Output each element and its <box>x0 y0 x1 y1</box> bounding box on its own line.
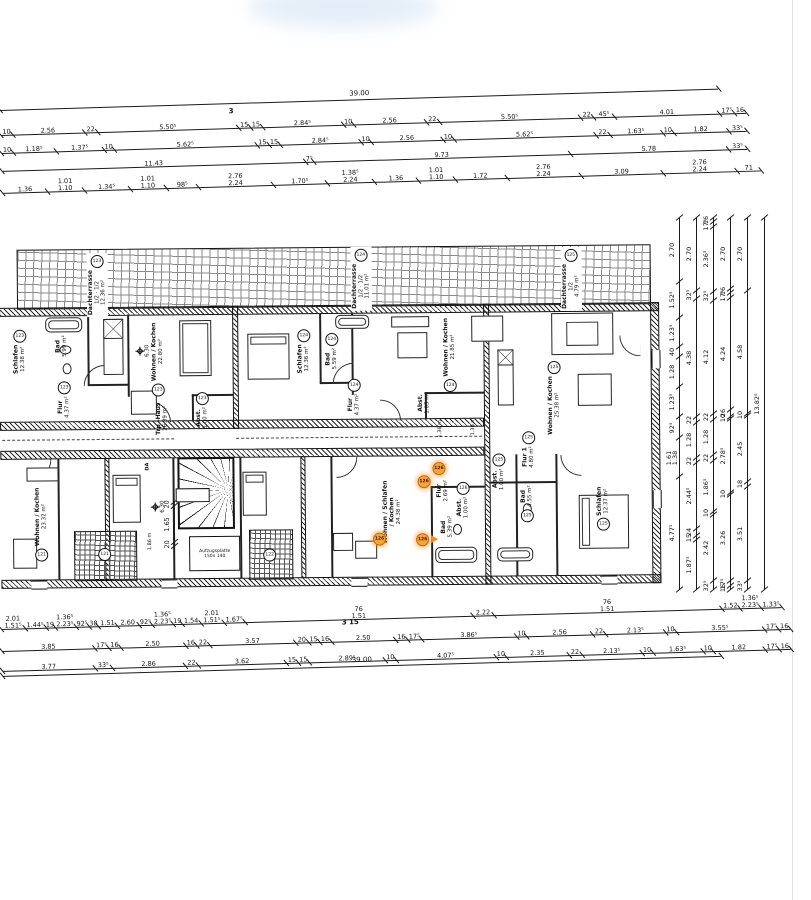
partition <box>425 392 485 394</box>
dim-value: 15 <box>257 139 269 146</box>
toilet-icon <box>453 524 462 535</box>
terrace-label-123: 123 Dachterrasse1/2 · 1/212.36 m² <box>87 253 108 317</box>
dim-value: 3.85 <box>2 642 94 651</box>
dim-value: 5.78 <box>570 143 728 154</box>
dim-value: 1.51 <box>98 619 117 626</box>
highlight-unit-badge: 126 <box>373 533 386 546</box>
dim-value: 4.77⁵ <box>664 477 679 590</box>
room-label-flur-123: 123 Flur4.37 m² <box>58 381 71 418</box>
dining-table-icon <box>578 374 612 406</box>
unit-badge: 123 <box>196 392 209 405</box>
dim-value: 10 <box>103 143 114 150</box>
dim-value: 5.62⁵ <box>453 129 596 140</box>
dim-value: 45⁵ <box>593 110 614 117</box>
dim-value: 98⁵ <box>166 181 198 188</box>
dim-value: 1.36⁵ 2.23⁵ <box>739 595 760 609</box>
unit-badge: 125 <box>521 509 534 522</box>
staircase <box>177 457 235 529</box>
dim-value: 16 <box>109 641 121 648</box>
dim-value: 38 <box>89 620 99 627</box>
overall-dimension-value: 39.00 <box>352 656 372 665</box>
armchair-icon <box>333 533 353 551</box>
dim-value: 4.58 <box>732 291 747 414</box>
dim-value: 1.28 <box>681 423 696 457</box>
v-dimension-chain-2: 2.7032⁵4.38221.28222.44⁵24151.87⁵ <box>681 218 697 590</box>
floorplan-scan-page: 39.00 3 102.56225.50⁵15152.84⁵102.56225.… <box>0 0 811 900</box>
v-dimension-chain-5: 2.704.58102.45183.5133⁵ <box>732 218 748 590</box>
dim-value: 1.67⁵ <box>223 616 245 623</box>
unit-badge: 121 <box>35 548 48 561</box>
dim-value: 10 <box>360 135 371 142</box>
unit-badge: 123 <box>152 383 165 396</box>
v-dimension-chain-3: 1617⁵2.36⁵32⁵4.12221.28221.86⁵102.4232⁵ <box>698 218 714 590</box>
bathtub-icon <box>497 547 533 561</box>
overall-dimension-value: 39.00 <box>349 89 369 98</box>
dim-value: 11.43 <box>2 155 305 170</box>
dim-value: 19 <box>46 621 55 628</box>
sofa-icon <box>391 316 429 327</box>
dim-value: 16 <box>734 106 746 113</box>
dim-value: 10 <box>443 133 454 140</box>
unit-badge: 125 <box>564 249 577 262</box>
unit-badge: 123 <box>13 330 26 343</box>
bed-icon <box>113 475 141 523</box>
apartment-separation-wall-4 <box>300 456 306 578</box>
dim-value: 1.72 <box>454 171 506 179</box>
room-label-flur1-125: 125 Flur 14.80 m² <box>522 431 535 468</box>
dim-value: 19 <box>173 617 182 624</box>
partition <box>192 394 194 421</box>
bathtub-icon <box>435 547 477 563</box>
mini-dim: 1.36 m <box>470 418 476 436</box>
dim-value: 1.01 1.10 <box>418 167 455 181</box>
dim-value: 3.55⁵ <box>676 623 765 632</box>
dim-value: 1.33⁵ <box>761 601 782 608</box>
dim-value: 3.09 <box>581 167 663 176</box>
window <box>31 580 47 589</box>
highlight-arrow-icon <box>431 535 438 543</box>
dim-value: 2.56 <box>371 133 443 142</box>
dim-value: 2.84⁵ <box>262 118 343 127</box>
unit-badge: 124 <box>444 379 457 392</box>
unit-badge: 124 <box>297 329 310 342</box>
room-label-wohnen-123: Wohnen / Kochen22.80 m² 123 <box>151 322 165 396</box>
dim-value: 3.86⁵ <box>421 630 516 639</box>
unit-badge: 123 <box>90 255 103 268</box>
highlight-unit-badge: 126 <box>416 533 429 546</box>
unit-badge: 125 <box>522 431 535 444</box>
room-label-bad-123: Bad5.99 m² <box>55 335 68 357</box>
dim-value: 1.23⁵ <box>664 318 679 347</box>
door-arc <box>380 399 401 420</box>
sofa-set-icon <box>551 313 613 356</box>
paper-edge-line <box>792 0 793 900</box>
axis-mark: 3 15 <box>342 618 359 626</box>
unit-badge: 126 <box>457 482 470 495</box>
dim-value: 10 <box>343 118 354 125</box>
dim-value: 1.44⁵ <box>24 621 45 628</box>
dim-value: 4.12 <box>698 301 713 414</box>
room-label-wohnen-124: Wohnen / Kochen21.85 m² 124 <box>443 318 457 392</box>
room-label-schlafen-124: 124 Schlafen12.36 m² <box>297 329 310 373</box>
room-label-wohnen-125: 125 Wohnen / Kochen25.38 m² <box>548 361 562 435</box>
dim-value: 4.01 <box>614 107 719 117</box>
partition <box>431 486 433 577</box>
dim-value: 22 <box>596 128 609 135</box>
v-dimension-chain-1: 2.701.52⁵1.23⁵401.281.23⁵92⁵1.61 1.384.7… <box>664 218 680 590</box>
dining-table-icon <box>471 315 503 341</box>
level-mark: 6.30 <box>151 502 160 511</box>
dim-value: 2.76 2.24 <box>662 158 737 173</box>
dim-value: 2.70 <box>715 218 730 289</box>
dim-value: 1.01 1.10 <box>47 178 84 192</box>
level-mark: 6.30 <box>135 347 144 356</box>
dim-value: 1.86⁵ <box>698 461 713 512</box>
dim-value: 3.26 <box>715 495 730 581</box>
dim-value: 10 <box>516 630 526 637</box>
dim-value: 2.56 <box>12 126 84 135</box>
dim-value: 16 <box>319 635 331 642</box>
dim-value: 2.44⁵ <box>681 463 696 529</box>
elevator-plate: Aufzugsplatte 150x 140 <box>189 536 240 571</box>
room-label-flur-124: 124 Flur4.37 m² <box>348 379 361 416</box>
dim-value: 16 <box>778 622 790 629</box>
dim-value: 5.50⁵ <box>439 111 580 122</box>
window <box>651 350 660 368</box>
unit-badge: 123 <box>58 381 71 394</box>
outer-wall-right <box>650 302 661 583</box>
dim-value: 92⁵ <box>664 417 679 439</box>
room-label-studio-126: Wohnen / Schlafen / Kochen24.38 m² <box>383 480 403 543</box>
dim-value: 2.42 <box>698 515 713 581</box>
window <box>161 579 177 588</box>
dim-value: 2.84⁵ <box>280 136 361 145</box>
bathtub-icon <box>45 317 82 332</box>
partition <box>319 313 321 383</box>
room-label-schlafen-125: Schlafen12.37 m² 125 <box>597 487 610 531</box>
dim-value: 2.36⁵ <box>698 227 713 292</box>
partition <box>330 456 333 578</box>
sofa-icon <box>179 320 211 376</box>
table-icon <box>397 332 427 358</box>
dim-value: 20 <box>159 542 174 546</box>
scan-smudge <box>248 0 438 28</box>
unit-badge: 125 <box>492 453 505 466</box>
apartment-separation-wall-1 <box>232 306 239 429</box>
kitchen-sink-icon <box>497 349 513 365</box>
door-arc <box>560 455 581 476</box>
unit-badge: 121 <box>98 548 111 561</box>
dim-value: 2.70 <box>681 218 696 291</box>
top-dimension-block: 39.00 3 102.56225.50⁵15152.84⁵102.56225.… <box>0 69 763 200</box>
dim-value: 1.63⁵ <box>609 127 663 135</box>
dim-value: 92⁵ <box>75 620 89 627</box>
door-arc <box>619 335 640 356</box>
door-arc <box>336 457 357 478</box>
floor-plan: Aufzugsplatte 150x 140 121 122 <box>0 240 663 592</box>
unit-badge: 124 <box>348 379 361 392</box>
dim-value: 10 <box>2 146 13 153</box>
dim-value: 71 <box>737 164 761 171</box>
dim-value: 1.01 1.10 <box>129 175 166 189</box>
bed-icon <box>247 333 289 379</box>
dim-value: 1.87⁵ <box>681 540 696 590</box>
window <box>601 576 617 585</box>
dim-value: 2.56 <box>526 628 592 636</box>
dim-value: 1.70⁵ <box>273 177 327 185</box>
room-label-abst-125: 125 Abst.1.00 m² <box>492 453 505 490</box>
dim-value: 17⁵ <box>94 641 108 648</box>
dim-value: 22 <box>580 111 593 118</box>
kitchen-sink-icon <box>103 319 123 339</box>
dim-value: 2.78⁵ <box>715 419 730 492</box>
dim-value: 10 <box>662 127 673 134</box>
dim-value: 76 1.51 <box>493 596 721 615</box>
dim-value: 16 <box>396 633 408 640</box>
dim-value: 2.22 <box>473 609 494 616</box>
dim-value: 32⁵ <box>698 292 713 301</box>
dim-value: 17⁵ <box>764 623 778 630</box>
room-label-bad-125: Bad4.55 m² 125 <box>521 485 534 522</box>
dim-value: 1.52⁵ <box>664 282 679 318</box>
dim-value: 1.37⁵ <box>56 143 104 151</box>
v-dimension-chain-4: 2.701617⁵4.2426102.78⁵103.2617⁵16 <box>715 218 731 590</box>
dim-value: 20 <box>296 636 308 643</box>
dim-value: 22 <box>84 126 97 133</box>
dim-value: 92⁵ <box>138 618 152 625</box>
highlight-unit-badge: 126 <box>432 462 445 475</box>
dim-value: 1.18⁵ <box>12 145 56 153</box>
dim-value: 9.73 <box>313 148 569 162</box>
dim-value: 33⁵ <box>728 142 747 149</box>
dim-value: 1.36 <box>374 174 418 182</box>
bathtub-icon <box>335 315 369 329</box>
unit-badge: 124 <box>354 249 367 262</box>
da-label: DA <box>144 463 150 471</box>
partition <box>555 454 558 576</box>
dim-value: 1.52 <box>721 602 740 609</box>
wall-lower-band-top <box>0 447 484 460</box>
terrace-label-125: 125 Dachterrasse1/24.79 m² <box>561 247 582 311</box>
dim-value: 5.62⁵ <box>114 139 257 150</box>
dim-value: 1.36⁵ 2.23⁵ <box>54 614 75 628</box>
dim-value: 1.34⁵ <box>83 183 129 191</box>
room-label-bad-126: Bad5.39 m² <box>441 516 454 538</box>
dim-value: 1.36⁵ 2.23⁵ <box>152 611 173 625</box>
dim-value: 1.28 <box>698 420 713 455</box>
dim-value: 1.38⁵ 2.24 <box>327 169 374 183</box>
dim-value: 2.01 1.51⁵ <box>200 610 223 624</box>
dim-value: 17⁵ <box>719 107 734 114</box>
dim-value: 22 <box>426 115 439 122</box>
dim-value: 3.57 <box>209 636 296 645</box>
unit-badge: 125 <box>597 518 610 531</box>
dim-value: 16 <box>779 642 791 649</box>
dim-value: 2.50 <box>331 633 396 641</box>
dim-value: 7⁵ <box>305 155 314 162</box>
window <box>653 490 662 508</box>
highlight-unit-badge: 126 <box>418 475 431 488</box>
wall-upper-band-bottom <box>0 418 484 431</box>
sofa-icon <box>26 467 58 481</box>
dim-value: 2.45 <box>732 416 747 482</box>
room-label-wohnen-121: Wohnen / Kochen23.32 m² 121 <box>35 487 49 561</box>
dim-value: 4.24 <box>715 298 730 410</box>
dim-value: 2.60 <box>117 619 139 626</box>
window <box>351 578 367 587</box>
dim-value: 16 <box>185 639 197 646</box>
dim-value: 2.13⁵ <box>605 626 665 634</box>
axis-mark: 3 <box>229 107 234 115</box>
stairhouse-label: Trp.-Haus26.39 m² <box>156 402 169 434</box>
room-label-abst-126: 126 Abst.1.00 m² <box>457 482 470 519</box>
dim-value: 1.36 <box>3 185 47 193</box>
terrace-label-124: 124 Dachterrasse1/2 · 1/211.01 m² <box>351 247 372 311</box>
room-label-abst-123: 123 Abst.1.00 m² <box>196 392 209 429</box>
elevator-size: 150x 140 <box>204 553 225 558</box>
dim-value: 2.76 2.24 <box>198 172 273 187</box>
roof-edge-dashed <box>236 436 482 439</box>
dim-value: 10 <box>665 626 675 633</box>
dim-value: 22 <box>196 639 209 646</box>
dim-value: 1.28 <box>664 357 679 387</box>
v-dimension-chain-total: 13.82⁵ <box>749 218 765 590</box>
dim-value: 33⁵ <box>728 124 746 131</box>
roof-edge-dashed <box>2 438 174 441</box>
dim-value: 1.23⁵ <box>664 387 679 416</box>
unit-badge: 125 <box>548 361 561 374</box>
room-label-schlafen-123: 123 Schlafen12.38 m² <box>13 330 26 374</box>
dim-value: 40 <box>664 347 679 357</box>
dim-value: 17⁵ <box>765 643 780 650</box>
dim-value: 2.50 <box>120 639 185 647</box>
level-value: 6.30 <box>160 500 166 512</box>
dim-value: 1.82 <box>673 125 728 133</box>
mini-dim: 1.36 m <box>437 420 443 438</box>
dim-value: 3.51 <box>732 487 747 581</box>
dim-value: 1.54 <box>182 617 201 624</box>
dim-value: 4.38 <box>681 299 696 417</box>
dim-value: 32⁵ <box>681 291 696 300</box>
stair-landing <box>176 488 210 502</box>
mini-dim: 1.86 m <box>147 533 153 551</box>
right-dimension-block: 2.701.52⁵1.23⁵401.281.23⁵92⁵1.61 1.384.7… <box>662 218 764 592</box>
bed-icon <box>242 472 266 516</box>
roof-terrace-hatch <box>17 244 651 310</box>
room-label-flur-126: Flur2.69 m² <box>437 480 450 502</box>
dim-value: 15 <box>268 138 280 145</box>
dim-value: 5.50⁵ <box>97 121 238 132</box>
apartment-separation-wall-2 <box>483 304 491 585</box>
toilet-icon <box>63 363 72 374</box>
bottom-dimension-block: 2.01 1.51⁵1.44⁵191.36⁵ 2.23⁵92⁵381.512.6… <box>0 582 793 682</box>
dim-value: 2.01 1.51⁵ <box>1 615 24 629</box>
unit-badge: 124 <box>325 333 338 346</box>
dim-value: 2.56 <box>353 116 425 125</box>
dim-value: 17⁵ <box>407 633 421 640</box>
dim-value: 2.76 2.24 <box>506 163 581 178</box>
room-label-abst-124: Abst.1.03 m² <box>418 392 431 414</box>
dim-value: 15 <box>308 636 319 643</box>
dim-value: 2.70 <box>664 218 679 282</box>
dim-value: 22 <box>593 628 606 635</box>
dim-value: 15 <box>250 121 262 128</box>
unit-badge: 122 <box>263 548 276 561</box>
room-label-bad-124: 124 Bad5.59 m² <box>325 333 338 370</box>
dim-value: 10 <box>1 128 12 135</box>
dim-value: 15 <box>238 121 250 128</box>
dim-value: 2.70 <box>732 218 747 291</box>
dim-value: 13.82⁵ <box>749 218 764 590</box>
dim-value: 1.61 1.38 <box>664 438 679 476</box>
